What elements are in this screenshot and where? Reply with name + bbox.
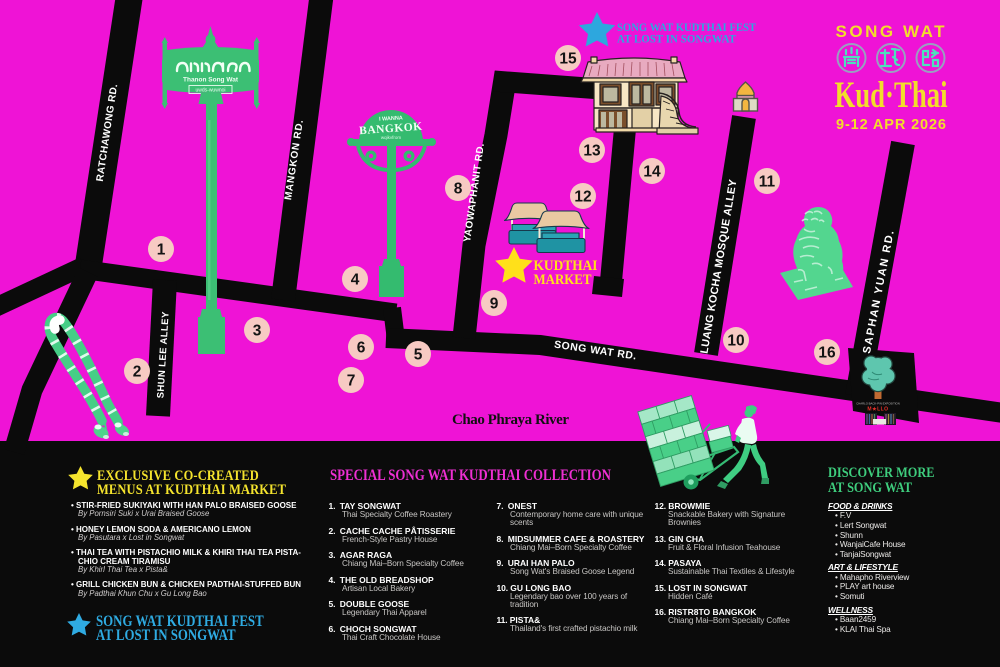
svg-text:7: 7 (347, 373, 356, 390)
svg-text:3: 3 (253, 323, 262, 340)
svg-text:10: 10 (727, 333, 744, 350)
svg-text:11: 11 (759, 174, 776, 191)
svg-text:Chao Phraya River: Chao Phraya River (452, 412, 569, 428)
svg-text:2: 2 (133, 364, 142, 381)
svg-text:14: 14 (643, 164, 661, 181)
svg-text:SONG WAT KUDTHAI FEST: SONG WAT KUDTHAI FEST (617, 22, 756, 34)
svg-text:4: 4 (351, 272, 360, 289)
svg-text:uwds-wuwnoi: uwds-wuwnoi (195, 88, 225, 94)
svg-text:Thanon Song Wat: Thanon Song Wat (183, 77, 239, 84)
svg-text:8: 8 (454, 181, 463, 198)
svg-text:12: 12 (574, 189, 591, 206)
svg-text:CHARLO BACK-PIN EXPOSITION: CHARLO BACK-PIN EXPOSITION (856, 402, 900, 406)
svg-text:9-12 APR 2026: 9-12 APR 2026 (836, 117, 946, 133)
svg-text:5: 5 (414, 347, 423, 364)
svg-text:M★LLO: M★LLO (867, 407, 888, 413)
svg-text:9: 9 (490, 296, 499, 313)
svg-text:wqikvfrom: wqikvfrom (381, 135, 402, 140)
svg-text:SONG WAT: SONG WAT (836, 22, 947, 41)
svg-text:Kud·Thai: Kud·Thai (835, 75, 948, 116)
svg-text:1: 1 (157, 242, 166, 259)
svg-text:16: 16 (818, 345, 836, 362)
svg-text:13: 13 (583, 143, 601, 160)
svg-text:AT LOST IN SONGWAT: AT LOST IN SONGWAT (617, 34, 736, 46)
svg-text:6: 6 (357, 340, 366, 357)
svg-text:MARKET: MARKET (534, 272, 592, 288)
svg-text:15: 15 (559, 51, 577, 68)
